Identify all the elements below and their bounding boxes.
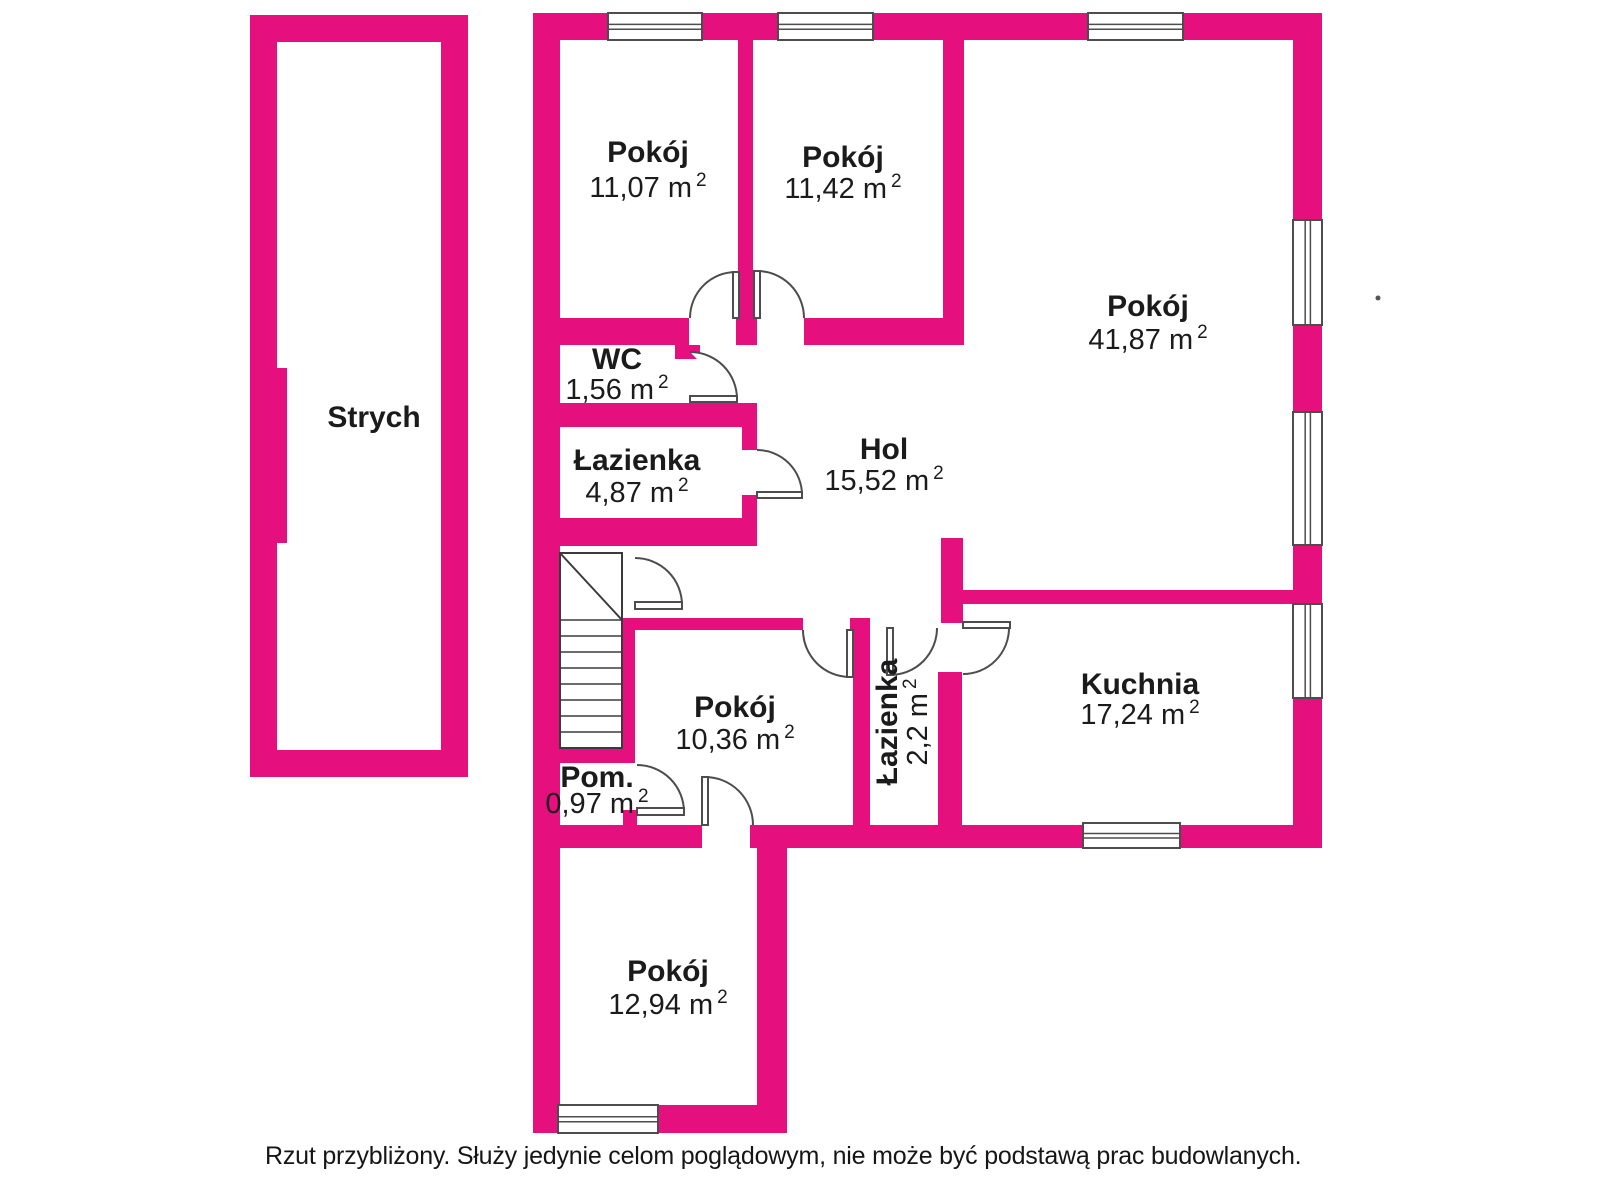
room-label-lazienka-4-87: Łazienka4,87 m2 [574,444,701,509]
room-area: 17,24 m2 [1080,697,1199,731]
wall-segment [938,672,962,825]
window-icon [1088,13,1183,40]
wall-segment [757,847,787,1133]
stairs [560,553,622,748]
wall-segment [441,15,468,777]
window-icon [558,1105,658,1133]
wall-segment [250,15,277,777]
room-name: Pokój [802,141,884,174]
room-name: Pokój [627,955,709,988]
room-name: Łazienka [574,444,701,477]
wall-segment [635,618,803,630]
room-label-pokoj-10-36: Pokój10,36 m2 [675,691,794,756]
door-arc [757,271,804,318]
wall-segment [533,1105,558,1133]
wall-segment [853,618,870,825]
room-area: 15,52 m2 [824,463,943,497]
wall-segment [560,318,689,345]
room-area: 41,87 m2 [1088,322,1207,356]
window-icon [1293,220,1322,325]
wall-segment [702,13,778,40]
door-leaf [754,271,760,318]
door-leaf [690,396,737,402]
door-stairs [635,558,682,609]
wall-segment [804,318,944,345]
wall-segment [1293,545,1322,604]
room-label-pokoj-11-42: Pokój11,42 m2 [784,141,901,205]
room-name: WC [592,343,642,376]
door-wc [690,352,737,402]
wall-segment [533,13,560,1133]
room-name: Pokój [1107,290,1189,323]
room-label-pom: Pom.0,97 m2 [545,761,648,820]
room-label-pokoj-11-07: Pokój11,07 m2 [589,136,706,204]
door-arc [690,272,736,318]
room-area: 10,36 m2 [675,722,794,756]
door-arc [705,777,753,825]
wall-segment [533,825,702,848]
room-label-strych: Strych [327,401,420,434]
wall-segment [736,318,757,345]
door-pokoj-11-07 [690,272,739,318]
room-name: Łazienka [871,658,904,785]
door-leaf [635,602,682,609]
wall-segment [250,15,468,42]
door-leaf [963,622,1010,628]
room-label-pokoj-41-87: Pokój41,87 m2 [1088,290,1207,356]
window-icon [1293,604,1322,698]
room-name: Kuchnia [1081,668,1200,701]
room-name: Strych [327,401,420,434]
wall-segment [742,427,757,450]
wall-segment [533,403,757,427]
door-leaf [733,272,739,318]
wall-segment [533,518,757,546]
door-leaf [757,492,802,498]
window-icon [778,13,873,40]
room-area: 4,87 m2 [585,475,688,509]
room-area: 11,42 m2 [784,171,901,205]
wall-segment [873,13,1088,40]
room-label-lazienka-2-2: Łazienka2,2 m2 [871,658,934,785]
room-name: Hol [860,433,908,466]
room-area: 2,2 m2 [900,678,934,765]
door-pokoj-10-36 [803,630,853,677]
wall-segment [941,538,963,623]
wall-segment [250,750,468,777]
window-icon [1083,823,1180,848]
room-area: 11,07 m2 [589,170,706,204]
wall-segment [738,40,753,345]
room-label-hol: Hol15,52 m2 [824,433,943,497]
room-name: Pokój [607,136,689,169]
floorplan-page: StrychPokój11,07 m2Pokój11,42 m2Pokój41,… [0,0,1600,1200]
room-label-pokoj-12-94: Pokój12,94 m2 [608,955,727,1021]
wall-segment [963,590,1293,604]
wall-segment [622,618,635,763]
wall-segment [1293,13,1322,220]
door-arc [757,450,802,495]
room-area: 0,97 m2 [545,786,648,820]
door-leaf [847,630,853,677]
wall-segment [750,825,1083,848]
door-arc [963,628,1009,674]
door-lazienka-487 [757,450,802,498]
wall-segment [658,1105,787,1133]
room-area: 1,56 m2 [565,372,668,406]
door-leaf [702,777,708,825]
window-icon [608,13,702,40]
door-arc [690,352,737,399]
door-arc [803,630,850,677]
wall-segment [1180,825,1322,848]
floorplan-svg: StrychPokój11,07 m2Pokój11,42 m2Pokój41,… [0,0,1600,1200]
door-pokoj-11-42 [754,271,804,318]
window-icon [1293,412,1322,545]
door-leaf [637,808,684,815]
stray-dot [1376,296,1381,301]
room-label-kuchnia: Kuchnia17,24 m2 [1080,668,1199,731]
room-label-wc: WC1,56 m2 [565,343,668,406]
room-area: 12,94 m2 [608,987,727,1021]
wall-segment [277,368,287,543]
wall-segment [943,40,964,345]
door-pokoj-12-94 [702,777,753,825]
door-arc [635,558,682,605]
room-name: Pokój [694,691,776,724]
door-kuchnia [963,622,1010,674]
wall-segment [1293,325,1322,412]
disclaimer-text: Rzut przybliżony. Służy jedynie celom po… [265,1142,1301,1171]
